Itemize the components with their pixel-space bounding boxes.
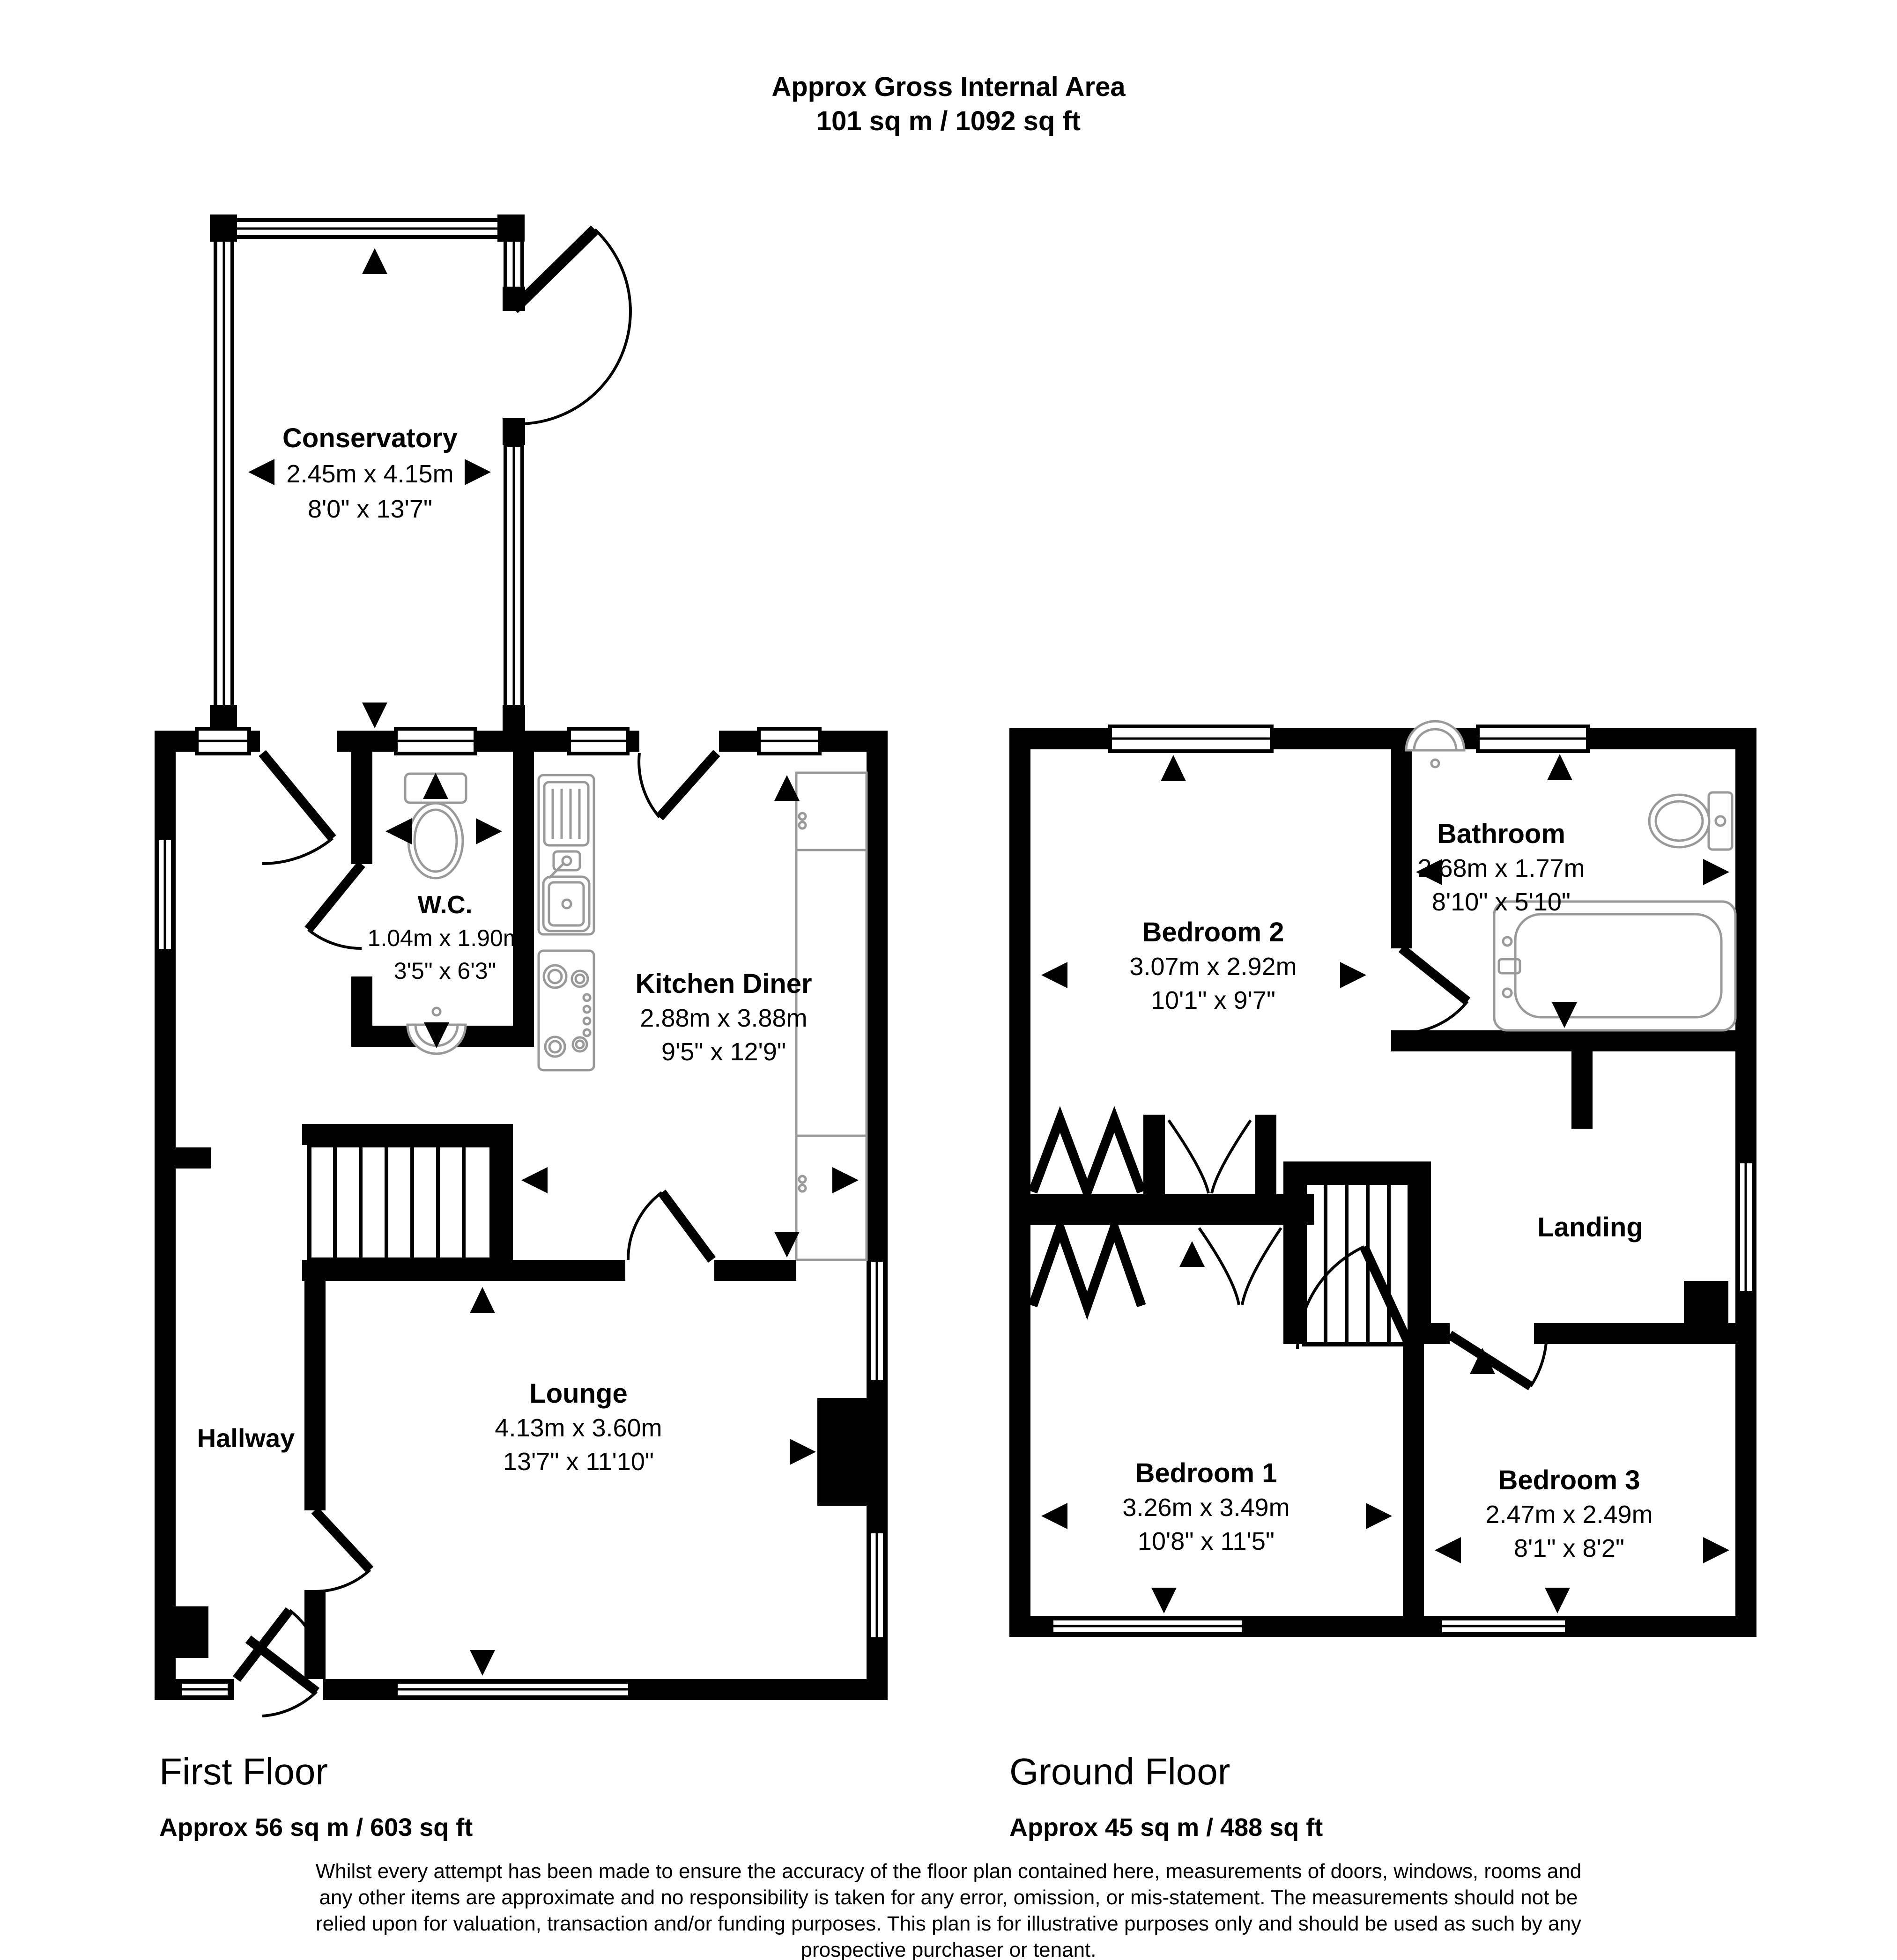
room-metric: 4.13m x 3.60m — [495, 1414, 662, 1442]
disclaimer-line4: prospective purchaser or tenant. — [800, 1938, 1096, 1960]
room-name: Bathroom — [1437, 819, 1565, 849]
first-floor-label: First Floor — [159, 1751, 328, 1792]
room-imperial: 10'8" x 11'5" — [1138, 1527, 1275, 1555]
room-imperial: 8'0" x 13'7" — [308, 495, 432, 523]
room-name: Kitchen Diner — [635, 969, 812, 999]
chimney-breast — [817, 1398, 888, 1506]
title-line1: Approx Gross Internal Area — [771, 72, 1126, 102]
room-imperial: 10'1" x 9'7" — [1151, 986, 1275, 1014]
ground-floor-label: Ground Floor — [1009, 1751, 1230, 1792]
title-line2: 101 sq m / 1092 sq ft — [816, 106, 1081, 136]
room-name: W.C. — [418, 891, 473, 919]
room-imperial: 13'7" x 11'10" — [503, 1448, 654, 1476]
floorplan-image: Approx Gross Internal Area 101 sq m / 10… — [0, 0, 1897, 1960]
room-metric: 2.47m x 2.49m — [1485, 1501, 1652, 1529]
ground-floor-area: Approx 45 sq m / 488 sq ft — [1009, 1813, 1323, 1842]
room-metric: 1.04m x 1.90m — [368, 925, 523, 951]
room-imperial: 3'5" x 6'3" — [394, 958, 496, 984]
landing-label: Landing — [1537, 1212, 1643, 1243]
room-name: Bedroom 2 — [1142, 917, 1284, 947]
room-name: Lounge — [529, 1378, 627, 1409]
room-name: Bedroom 3 — [1498, 1465, 1640, 1495]
bath-icon — [1494, 902, 1735, 1030]
conservatory-label: Conservatory 2.45m x 4.15m 8'0" x 13'7" — [282, 423, 458, 523]
room-metric: 2.45m x 4.15m — [286, 460, 453, 488]
room-name: Conservatory — [282, 423, 458, 453]
hob-icon — [539, 951, 594, 1070]
disclaimer-line3: relied upon for valuation, transaction a… — [316, 1912, 1581, 1935]
room-metric: 2.68m x 1.77m — [1417, 854, 1585, 882]
disclaimer-line2: any other items are approximate and no r… — [319, 1886, 1578, 1909]
bathroom-toilet-icon — [1649, 792, 1732, 850]
room-name: Bedroom 1 — [1135, 1458, 1277, 1488]
room-imperial: 8'1" x 8'2" — [1514, 1534, 1624, 1562]
room-imperial: 8'10" x 5'10" — [1432, 888, 1571, 916]
room-metric: 3.26m x 3.49m — [1122, 1494, 1289, 1522]
room-metric: 3.07m x 2.92m — [1129, 953, 1297, 981]
room-metric: 2.88m x 3.88m — [640, 1004, 807, 1032]
room-imperial: 9'5" x 12'9" — [661, 1038, 786, 1066]
disclaimer-line1: Whilst every attempt has been made to en… — [316, 1860, 1582, 1883]
first-floor-area: Approx 56 sq m / 603 sq ft — [159, 1813, 473, 1842]
kitchen-sink-icon — [539, 775, 594, 934]
hallway-label: Hallway — [197, 1423, 295, 1453]
